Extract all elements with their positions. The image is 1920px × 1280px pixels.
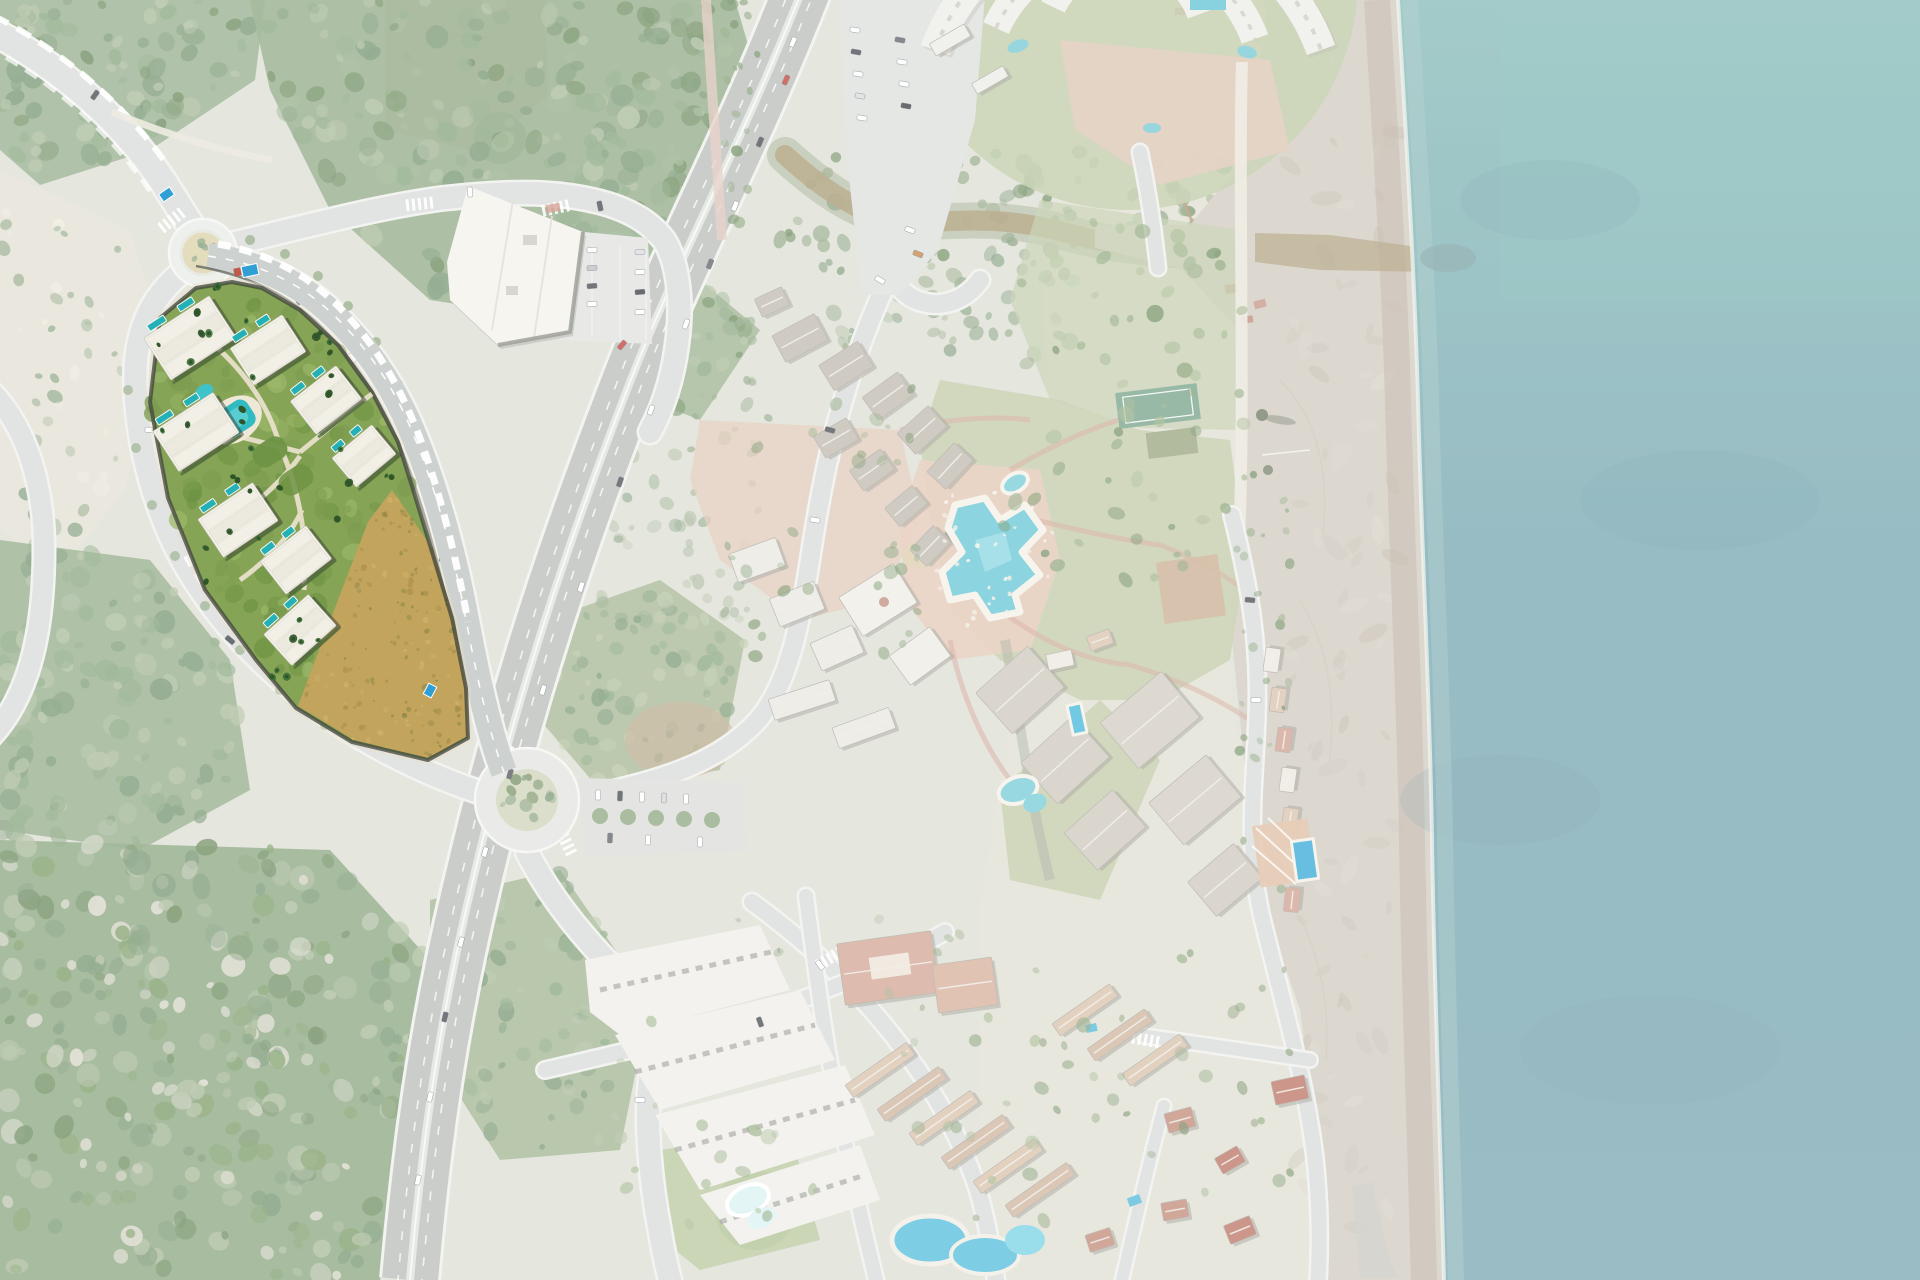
map-canvas [0, 0, 1920, 1280]
aerial-map [0, 0, 1920, 1280]
